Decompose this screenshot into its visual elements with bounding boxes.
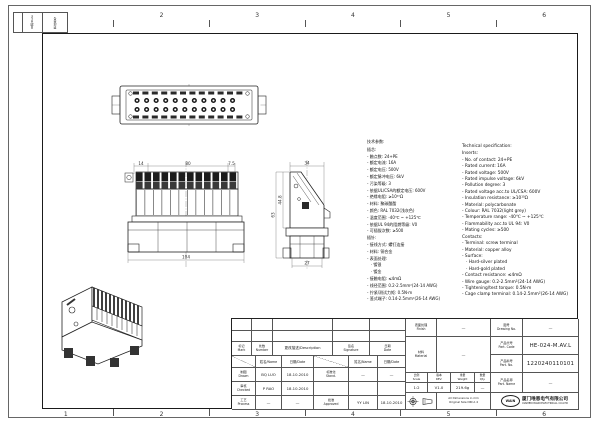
ruler-tick bbox=[400, 20, 401, 27]
top-view-drawing bbox=[110, 83, 268, 127]
part-name-value: — bbox=[523, 373, 579, 393]
diagonal-cell bbox=[314, 356, 349, 368]
part-name-label: 产品名称 Part. Name bbox=[491, 373, 523, 393]
standard-name: — bbox=[349, 368, 378, 382]
corner-revision-strip: 日期/Date 更改单号 bbox=[13, 12, 68, 33]
spec-line: - 笼式端子: 0.14-2.5mm²(26-14 AWG) bbox=[367, 296, 461, 303]
ruler-tick bbox=[209, 20, 210, 27]
grid-number: 1 bbox=[18, 411, 114, 418]
spec-cn-title: 技术参数: bbox=[367, 139, 461, 146]
title-block: 标记 Mark 处数 Number 更改描述/Description 签名 Si… bbox=[231, 318, 578, 409]
date-header: 日期 Date bbox=[370, 342, 406, 356]
rev-empty-cell bbox=[333, 331, 370, 342]
name-subheader: 姓名/Name bbox=[256, 356, 282, 368]
top-ruler: 123456 bbox=[18, 12, 592, 19]
scale-label: 比例 Scale bbox=[406, 373, 428, 383]
company-cell: WAIN 厦门唯恩电气有限公司 XIAMEN WAIN ELECTRICAL C… bbox=[491, 393, 579, 410]
spec-line: 插针: bbox=[367, 235, 461, 242]
dimensions-note: All Dimensions in mm Original Size DIN A… bbox=[437, 393, 491, 410]
ruler-tick bbox=[496, 20, 497, 27]
name-subheader: 姓名/Name bbox=[349, 356, 378, 368]
rev-empty-cell bbox=[273, 331, 333, 342]
signature-header: 签名 Signature bbox=[333, 342, 370, 356]
drawing-sheet: 123456 123456 日期/Date 更改单号 bbox=[0, 0, 600, 424]
spec-line: - 颜色: RAL 7032(浅灰色) bbox=[367, 208, 461, 215]
approved-label: 批准 Approved bbox=[314, 396, 349, 410]
dim-80: 80 bbox=[185, 161, 191, 166]
ruler-tick bbox=[496, 409, 497, 416]
spec-line: 插芯: bbox=[367, 147, 461, 154]
revision-approval-table: 标记 Mark 处数 Number 更改描述/Description 签名 Si… bbox=[232, 319, 406, 410]
part-code-label: 产品代号 Part. Code bbox=[491, 337, 523, 355]
grid-number: 4 bbox=[305, 411, 401, 418]
grid-number: 3 bbox=[209, 12, 305, 19]
drawing-no-value: — bbox=[523, 319, 579, 337]
finish-label: 表面处理 Finish bbox=[406, 319, 437, 337]
grid-number: 6 bbox=[496, 12, 592, 19]
standard-label: 标准化 Stand. bbox=[314, 368, 349, 382]
finish-value: — bbox=[437, 319, 491, 337]
approved-name: YY LIN bbox=[349, 396, 378, 410]
part-no-value: 1220240110101 bbox=[523, 355, 579, 373]
spec-line: - 接线方式: 螺钉连接 bbox=[367, 242, 461, 249]
rev-empty-cell bbox=[232, 319, 252, 331]
empty-cell bbox=[349, 382, 378, 396]
spec-line: - 额定脉冲电压: 6kV bbox=[367, 174, 461, 181]
spec-line: - 额定电压: 500V bbox=[367, 167, 461, 174]
spec-line: - 材料: 铜合金 bbox=[367, 249, 461, 256]
projection-symbol-cell bbox=[406, 393, 437, 410]
weight-value: 219.6g bbox=[451, 383, 475, 393]
spec-line: - 材料: 聚碳酸酯 bbox=[367, 201, 461, 208]
spec-line: - Cage clamp terminal: 0.14-2.5mm²(26-14… bbox=[462, 292, 566, 298]
standard-date: — bbox=[378, 368, 406, 382]
drawing-no-label: 图号 Drawing No. bbox=[491, 319, 523, 337]
qty-label: 数量 Qty. bbox=[475, 373, 491, 383]
rev-value: V1.0 bbox=[428, 383, 451, 393]
spec-line: - 接触电阻: ≤4mΩ bbox=[367, 276, 461, 283]
ruler-tick bbox=[400, 409, 401, 416]
spec-en-lines: Inserts:- No. of contact: 24+PE- Rated c… bbox=[462, 151, 566, 298]
ruler-tick bbox=[305, 20, 306, 27]
dim-14: 14 bbox=[138, 161, 144, 166]
grid-number: 2 bbox=[114, 411, 210, 418]
ruler-tick bbox=[209, 409, 210, 416]
description-header: 更改描述/Description bbox=[273, 342, 333, 356]
material-value: — bbox=[437, 337, 491, 373]
rev-label: 版本 REV. bbox=[428, 373, 451, 383]
dim-27: 27 bbox=[304, 261, 310, 266]
corner-doc-label: 更改单号 bbox=[54, 17, 57, 29]
dim-34: 34 bbox=[304, 161, 310, 166]
weight-label: 重量 Weight bbox=[451, 373, 475, 383]
empty-cell bbox=[378, 382, 406, 396]
diagonal-cell bbox=[232, 356, 256, 368]
grid-number: 5 bbox=[401, 411, 497, 418]
date-subheader: 日期/Date bbox=[282, 356, 314, 368]
ruler-tick bbox=[113, 409, 114, 416]
scale-value: 1:2 bbox=[406, 383, 428, 393]
rev-empty-cell bbox=[273, 319, 333, 331]
drawn-name: BQ LUO bbox=[256, 368, 282, 382]
spec-line: - 线径范围: 0.2-2.5mm²(24-14 AWG) bbox=[367, 283, 461, 290]
grid-number: 2 bbox=[114, 12, 210, 19]
spec-english: Technical specification: Inserts:- No. o… bbox=[462, 144, 566, 299]
ruler-tick bbox=[305, 409, 306, 416]
drawn-label: 制图 Drawn bbox=[232, 368, 256, 382]
mark-header: 标记 Mark bbox=[232, 342, 252, 356]
grid-number: 3 bbox=[209, 411, 305, 418]
drawn-date: 18.10.2010 bbox=[282, 368, 314, 382]
dim-44-8: 44.8 bbox=[278, 195, 283, 205]
wain-logo: WAIN bbox=[501, 395, 520, 407]
rev-empty-cell bbox=[232, 331, 252, 342]
dim-7-5: 7.5 bbox=[228, 161, 235, 166]
ruler-tick bbox=[113, 20, 114, 27]
checked-date: 18.10.2010 bbox=[282, 382, 314, 396]
corner-cell-doc: 更改单号 bbox=[43, 13, 67, 32]
company-name-en: XIAMEN WAIN ELECTRICAL CO.LTD bbox=[522, 402, 568, 405]
spec-line: - 温度范围: -40℃ ~ +125℃ bbox=[367, 215, 461, 222]
rev-empty-cell bbox=[252, 319, 273, 331]
spec-line: · 镀银 bbox=[367, 262, 461, 269]
side-view-drawing: 34 63 44.8 27 bbox=[266, 156, 342, 274]
checked-label: 审核 Checked bbox=[232, 382, 256, 396]
front-view-drawing: 14 80 7.5 104 bbox=[124, 158, 252, 272]
process-label: 工艺 Process bbox=[232, 396, 256, 410]
grid-number: 6 bbox=[496, 411, 592, 418]
rev-empty-cell bbox=[333, 319, 370, 331]
approved-date: 18.10.2010 bbox=[378, 396, 406, 410]
empty-cell bbox=[314, 382, 349, 396]
corner-date-label: 日期/Date bbox=[31, 15, 34, 29]
isometric-view-drawing bbox=[52, 274, 152, 372]
process-date: — bbox=[282, 396, 314, 410]
spec-line: · 镀金 bbox=[367, 269, 461, 276]
number-header: 处数 Number bbox=[252, 342, 273, 356]
spec-line: - 表面处理: bbox=[367, 256, 461, 263]
scale-block: 比例 Scale 版本 REV. 重量 Weight 数量 Qty. 1:2 V… bbox=[406, 373, 491, 393]
spec-line: - 可插拔次数: ≥500 bbox=[367, 228, 461, 235]
rev-empty-cell bbox=[252, 331, 273, 342]
qty-value: — bbox=[475, 383, 491, 393]
material-label: 材料 Material bbox=[406, 337, 437, 373]
part-no-label: 产品料号 Part. No. bbox=[491, 355, 523, 373]
process-name: — bbox=[256, 396, 282, 410]
grid-number: 5 bbox=[401, 12, 497, 19]
part-info-table: 表面处理 Finish — 图号 Drawing No. — 材料 Materi… bbox=[406, 319, 579, 410]
rev-empty-cell bbox=[370, 331, 406, 342]
part-code-value: HE-024-M.AV.L bbox=[523, 337, 579, 355]
dim-63: 63 bbox=[271, 212, 276, 218]
spec-line: - 污染等级: 3 bbox=[367, 181, 461, 188]
spec-chinese: 技术参数: 插芯:- 触点数: 24+PE- 额定电流: 16A- 额定电压: … bbox=[367, 139, 461, 303]
dim-104: 104 bbox=[182, 255, 190, 260]
spec-cn-lines: 插芯:- 触点数: 24+PE- 额定电流: 16A- 额定电压: 500V- … bbox=[367, 147, 461, 303]
rev-empty-cell bbox=[370, 319, 406, 331]
first-angle-projection-icon bbox=[407, 395, 435, 408]
checked-name: P RAO bbox=[256, 382, 282, 396]
grid-number: 4 bbox=[305, 12, 401, 19]
spec-en-title: Technical specification: bbox=[462, 144, 566, 150]
corner-cell-empty bbox=[14, 13, 23, 32]
corner-cell-date: 日期/Date bbox=[23, 13, 43, 32]
date-subheader: 日期/Date bbox=[378, 356, 406, 368]
